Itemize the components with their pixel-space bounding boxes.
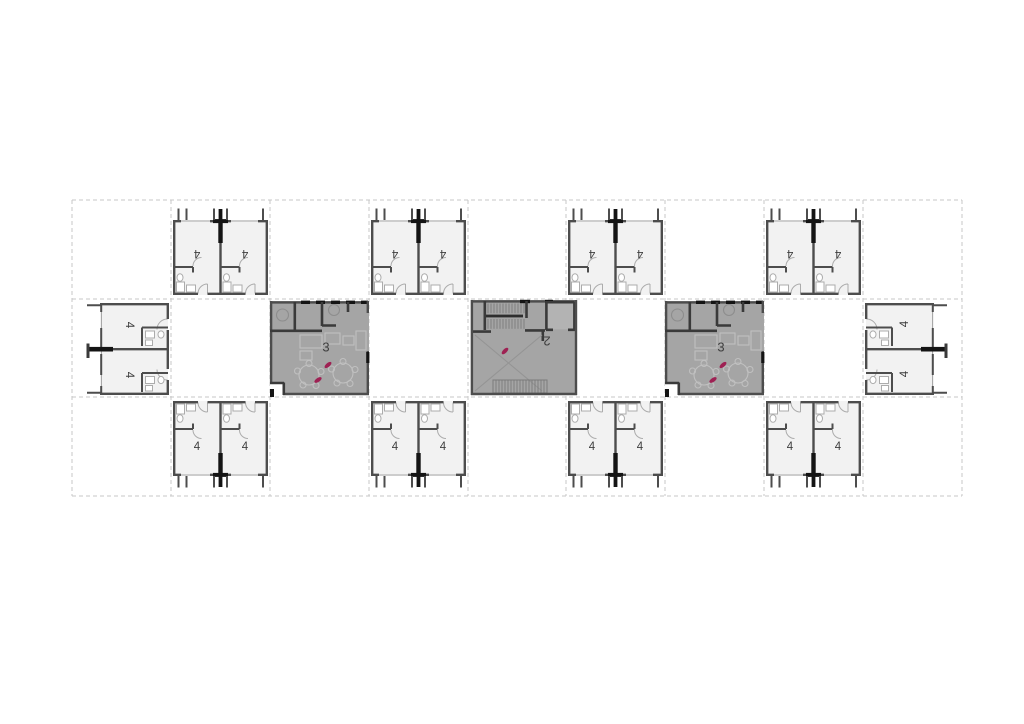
room-label: 4 bbox=[392, 441, 399, 453]
unit-pair-top-4 bbox=[766, 209, 861, 296]
room-label: 4 bbox=[589, 441, 596, 453]
unit-pair-bottom-3 bbox=[568, 401, 663, 488]
room-label: 4 bbox=[834, 247, 841, 259]
room-label: 4 bbox=[787, 441, 794, 453]
shared-lounge-east bbox=[665, 301, 764, 397]
room-label: 4 bbox=[439, 247, 446, 259]
shared-lounge-west bbox=[270, 301, 369, 397]
room-label: 4 bbox=[636, 247, 643, 259]
room-label: 4 bbox=[588, 247, 595, 259]
stair-core bbox=[471, 300, 577, 395]
end-units-west bbox=[87, 303, 168, 395]
unit-pair-top-1 bbox=[173, 209, 268, 296]
unit-pair-bottom-4 bbox=[766, 401, 861, 488]
room-label: 4 bbox=[123, 372, 135, 379]
room-label: 4 bbox=[242, 441, 249, 453]
room-label: 4 bbox=[835, 441, 842, 453]
room-label: 4 bbox=[637, 441, 644, 453]
building-modules bbox=[87, 209, 947, 488]
room-label: 3 bbox=[322, 340, 329, 355]
end-units-east bbox=[866, 303, 947, 395]
unit-pair-bottom-1 bbox=[173, 401, 268, 488]
room-label: 4 bbox=[241, 247, 248, 259]
room-label: 3 bbox=[717, 340, 724, 355]
room-label: 4 bbox=[391, 247, 398, 259]
room-label: 4 bbox=[193, 247, 200, 259]
room-label: 4 bbox=[899, 320, 911, 327]
unit-pair-top-3 bbox=[568, 209, 663, 296]
room-label: 4 bbox=[123, 322, 135, 329]
room-label: 4 bbox=[440, 441, 447, 453]
unit-pair-top-2 bbox=[371, 209, 466, 296]
room-label: 4 bbox=[899, 370, 911, 377]
floor-plan: 44444444444444444444332 bbox=[0, 0, 1024, 724]
room-label: 2 bbox=[543, 334, 550, 349]
room-label: 4 bbox=[194, 441, 201, 453]
drawing-sheet: 44444444444444444444332 bbox=[0, 0, 1024, 724]
room-label: 4 bbox=[786, 247, 793, 259]
unit-pair-bottom-2 bbox=[371, 401, 466, 488]
